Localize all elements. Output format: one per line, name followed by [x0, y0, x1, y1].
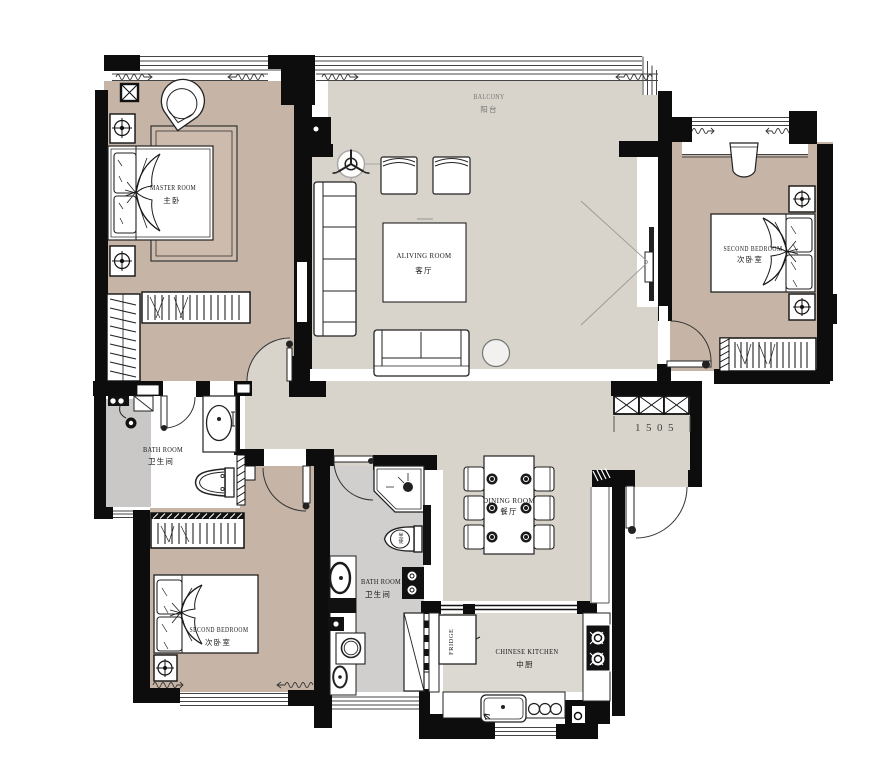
svg-text:FRIDGE: FRIDGE [448, 629, 455, 655]
svg-text:客厅: 客厅 [415, 265, 432, 275]
svg-text:阳台: 阳台 [480, 104, 497, 114]
svg-text:DINING ROOM: DINING ROOM [483, 497, 535, 505]
svg-text:便: 便 [398, 538, 403, 545]
svg-text:次卧室: 次卧室 [205, 637, 231, 647]
svg-text:坐: 坐 [398, 532, 403, 539]
svg-text:餐厅: 餐厅 [500, 507, 517, 516]
svg-text:1505: 1505 [635, 422, 679, 434]
svg-text:中厨: 中厨 [516, 659, 533, 669]
svg-text:ALIVING ROOM: ALIVING ROOM [397, 252, 452, 260]
svg-text:MASTER ROOM: MASTER ROOM [150, 184, 196, 192]
svg-text:卫生间: 卫生间 [365, 589, 391, 599]
svg-text:BATH ROOM: BATH ROOM [143, 446, 183, 454]
svg-text:卫生间: 卫生间 [148, 456, 174, 466]
svg-text:CHINESE KITCHEN: CHINESE KITCHEN [496, 648, 559, 656]
svg-text:SECOND BEDROOM: SECOND BEDROOM [724, 245, 783, 253]
svg-text:主卧: 主卧 [163, 195, 180, 205]
svg-text:BALCONY: BALCONY [474, 93, 505, 101]
svg-text:BATH ROOM: BATH ROOM [361, 578, 401, 586]
svg-text:次卧室: 次卧室 [737, 254, 763, 264]
svg-text:SECOND BEDROOM: SECOND BEDROOM [190, 626, 249, 634]
